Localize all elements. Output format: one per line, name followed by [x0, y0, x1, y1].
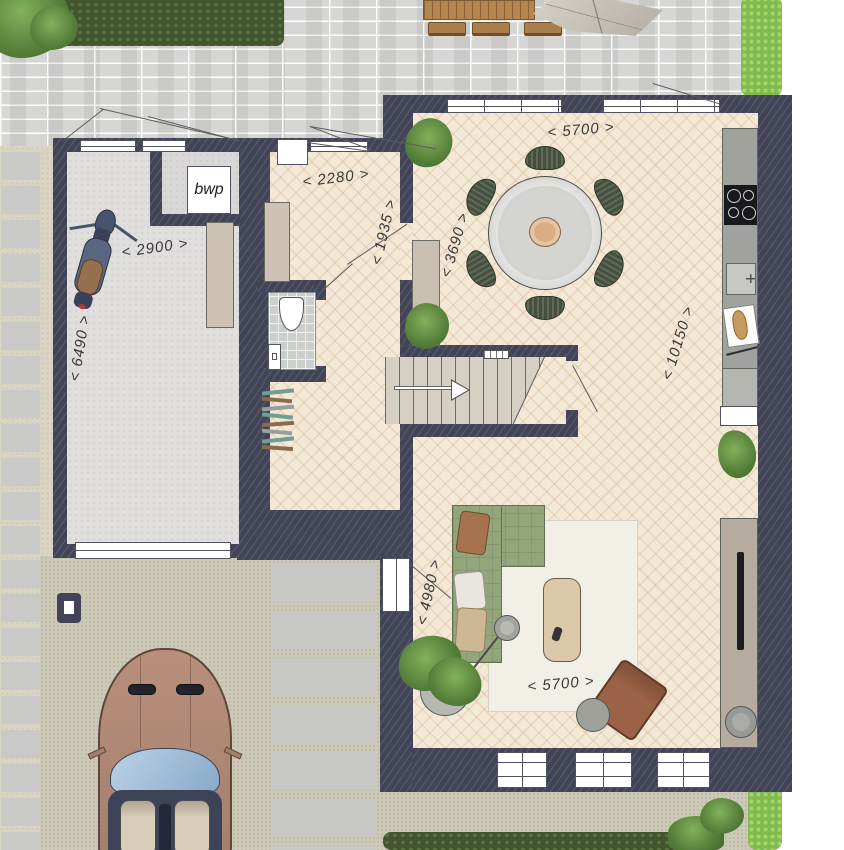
living-window-north-left: [447, 99, 562, 113]
stair-up-arrow: [452, 381, 468, 399]
scooter-mirror-right: [113, 223, 137, 242]
garage-window-north: [80, 140, 136, 152]
sink-faucet-icon: [746, 274, 755, 283]
stepping-stones: [272, 564, 376, 850]
kitchen-lower-cabinet: [722, 368, 758, 408]
car-seat: [174, 800, 210, 850]
stair-treads: [385, 357, 497, 424]
stair-wall-right-lower: [566, 410, 578, 437]
floor-plan: bwp < 2900 > < 6490 > < 2280 > < 1935 > …: [0, 0, 844, 850]
speaker: [725, 706, 757, 738]
scooter-mirror-left: [69, 223, 95, 230]
terrace-deck: [423, 0, 535, 20]
paving-slab-column: [1, 152, 40, 850]
side-table: [576, 698, 610, 732]
stair-wall-right-upper: [566, 345, 578, 361]
hall-cabinet: [264, 202, 290, 282]
car-console: [159, 804, 171, 850]
living-window-south: [497, 752, 547, 788]
front-door-leaf: [277, 139, 308, 165]
floor-lamp-base: [494, 615, 520, 641]
stair-up-arrow-stem: [394, 386, 454, 390]
lamp-post-center: [64, 601, 74, 614]
burner: [728, 207, 739, 218]
car-hood-seam: [190, 656, 191, 748]
living-window-north-right: [603, 99, 720, 113]
terrace-bench: [472, 22, 510, 36]
side-door: [382, 558, 410, 612]
tv-screen: [737, 552, 744, 650]
stair-wall-bottom: [403, 424, 578, 437]
car-seat: [120, 800, 156, 850]
car-vent: [176, 684, 204, 695]
dining-chair: [525, 146, 565, 170]
sofa-cushion-brown: [455, 510, 491, 556]
terrace-bench: [428, 22, 466, 36]
coffee-table: [543, 578, 581, 662]
heat-pump-unit: bwp: [187, 166, 231, 214]
stair-radiator: [483, 350, 509, 359]
sofa-cushion-beige: [455, 607, 488, 653]
burner: [727, 189, 741, 203]
hedge-top: [52, 0, 284, 46]
burner: [743, 190, 754, 201]
car: [98, 648, 232, 850]
heat-pump-label: bwp: [194, 181, 223, 199]
kitchen-appliance: [720, 406, 758, 426]
hedge-right-top: [741, 0, 782, 97]
toilet-wall-bottom: [258, 368, 326, 382]
garage-cabinet: [206, 222, 234, 328]
car-hood-seam: [140, 656, 141, 748]
cooktop: [724, 185, 757, 225]
living-window-south: [575, 752, 632, 788]
fruit-bowl: [529, 217, 561, 247]
sofa-cushion-white: [453, 571, 487, 612]
living-window-south: [657, 752, 710, 788]
burner: [742, 206, 756, 220]
car-vent: [128, 684, 156, 695]
washbasin-drain: [272, 353, 277, 360]
garage-window-north: [142, 140, 186, 152]
garage-door: [75, 542, 231, 559]
